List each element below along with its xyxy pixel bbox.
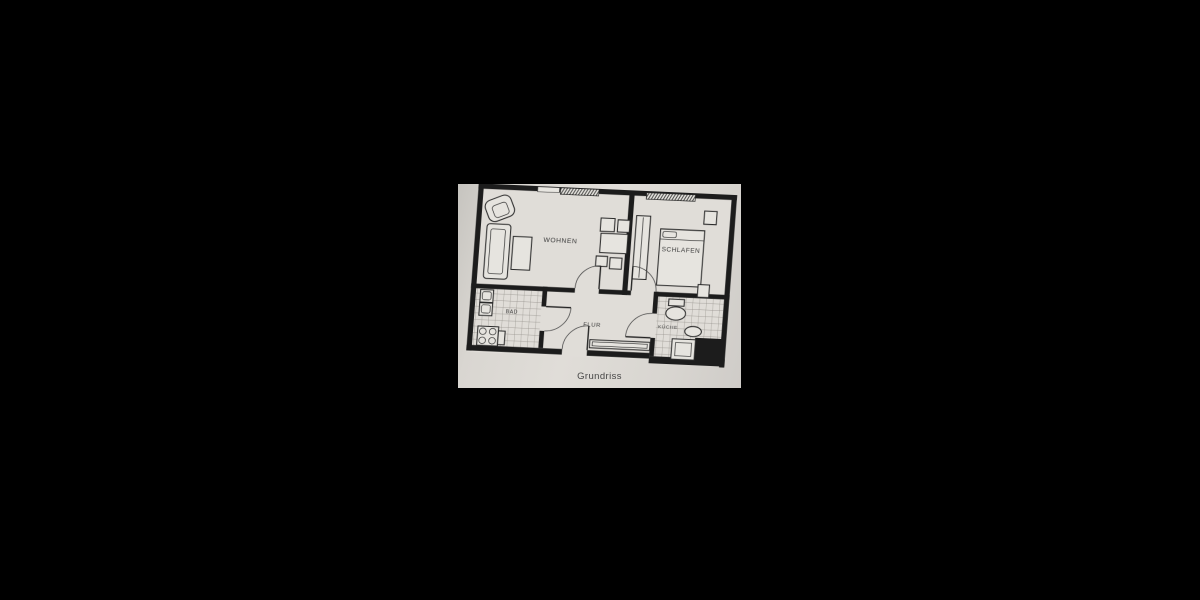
window-plain [538,187,560,193]
cistern [668,299,684,306]
dining-chair [600,218,615,232]
dining-chair [617,220,630,233]
room-label-bad: BAD [505,309,518,315]
shower [671,339,696,360]
counter [497,331,505,345]
dining-chair [595,256,607,267]
coffee-table [511,236,532,270]
room-label-flur: FLUR [583,322,601,329]
window-wohnen-hatch [560,188,599,196]
floorplan-caption: Grundriss [458,371,741,382]
photo-viewer-background: WOHNEN SCHLAFEN BAD FLUR KÜCHE Grundriss [0,0,1200,600]
floorplan-photo: WOHNEN SCHLAFEN BAD FLUR KÜCHE Grundriss [458,184,741,388]
nightstand [704,211,717,225]
floorplan-drawing: WOHNEN SCHLAFEN BAD FLUR KÜCHE [458,184,741,371]
dining-chair [609,258,622,270]
nightstand [697,284,709,297]
dining-table [600,233,628,253]
sofa [483,224,511,280]
bed [656,229,704,287]
toilet-kueche [665,306,686,320]
sink [684,326,701,337]
